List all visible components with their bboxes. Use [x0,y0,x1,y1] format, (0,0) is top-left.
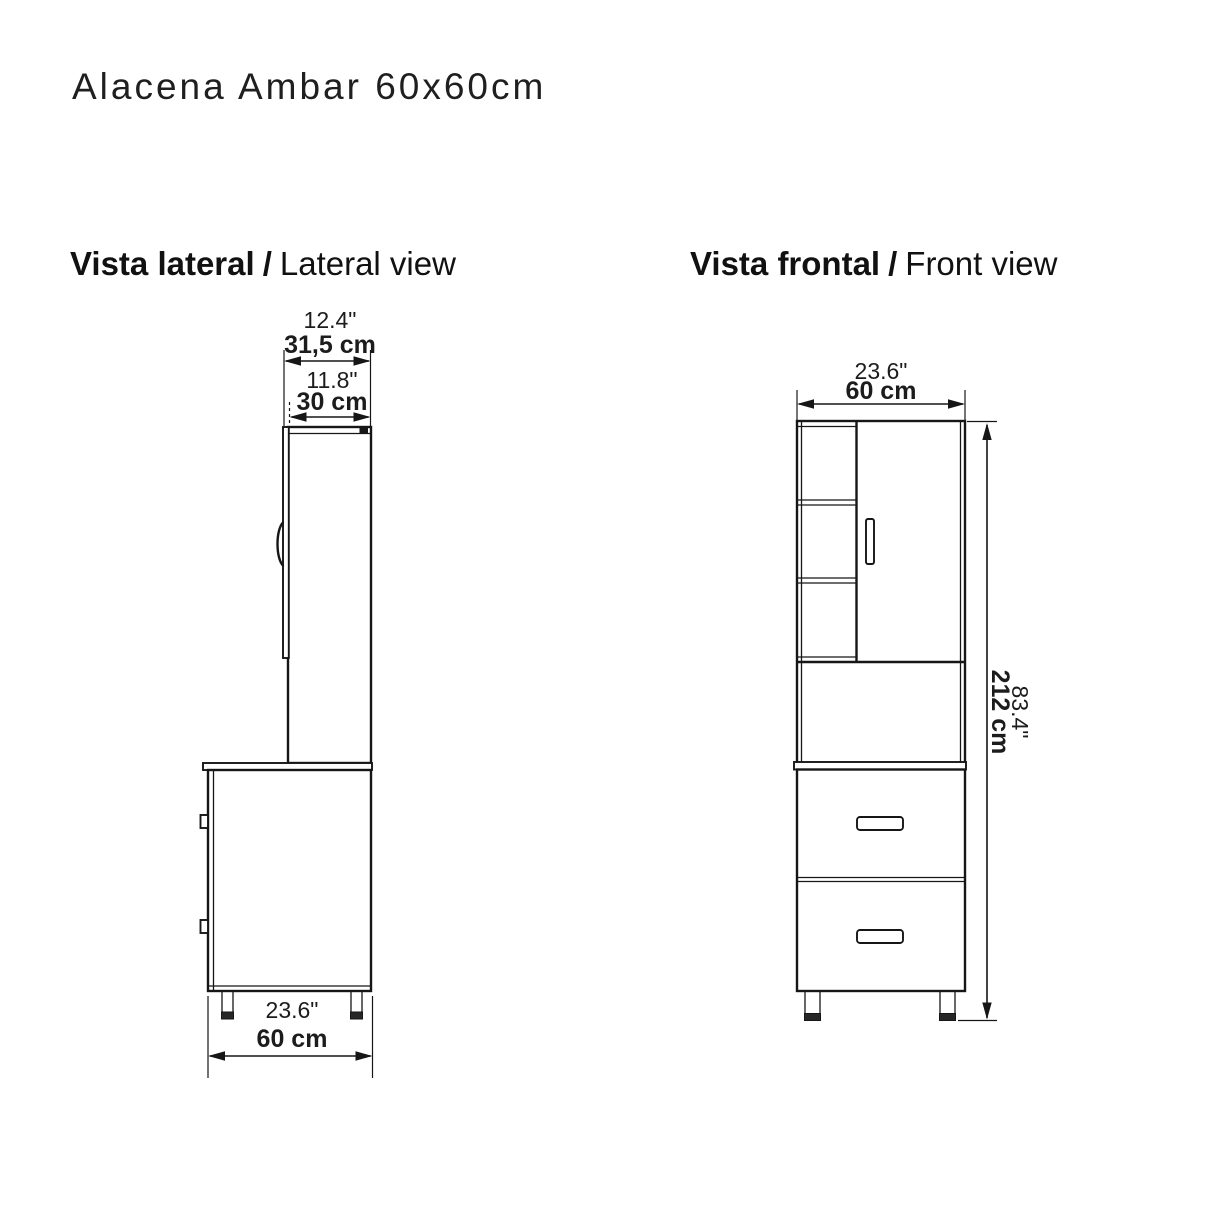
drawer-handle [857,817,903,830]
heading-separator: / [255,245,280,282]
furniture-dimension-diagram: Alacena Ambar 60x60cm Vista lateral/Late… [0,0,1214,1214]
height-cm-label: 212 cm [986,670,1014,755]
leg-foot [222,1012,234,1019]
total-depth-inches-label: 12.4" [304,307,357,333]
lateral-view-heading: Vista lateral/Lateral view [70,245,456,283]
base-cabinet-body [208,770,371,991]
lateral-heading-spanish: Vista lateral [70,245,255,282]
arrowhead-right [948,399,965,408]
leg-foot [940,1014,956,1021]
width-cm-label: 60 cm [846,377,917,405]
door-edge-profile [283,427,289,658]
frontal-heading-english: Front view [905,245,1057,282]
upper-cabinet-body [797,421,965,763]
base-width-inches-label: 23.6" [266,997,319,1023]
drawer-handle-profile [201,815,209,828]
lateral-base-cabinet [201,770,372,1019]
lateral-body-depth-dimension: 11.8" 30 cm [290,367,371,427]
frontal-height-dimension: 83.4" 212 cm [958,422,1033,1021]
leg-foot [805,1014,821,1021]
lateral-heading-english: Lateral view [280,245,456,282]
arrowhead-left [208,1051,225,1060]
arrowhead-bottom [982,1003,991,1020]
lateral-upper-cabinet [278,427,372,763]
base-width-cm-label: 60 cm [257,1025,328,1053]
drawer-handle-profile [201,920,209,933]
arrowhead-top [982,423,991,440]
frontal-heading-spanish: Vista frontal [690,245,880,282]
hinge-mark [360,428,369,434]
leg-foot [351,1012,363,1019]
arrowhead-right [356,1051,373,1060]
total-depth-cm-label: 31,5 cm [284,331,376,359]
heading-separator: / [880,245,905,282]
frontal-view-heading: Vista frontal/Front view [690,245,1058,283]
upper-cabinet-body [288,427,371,763]
body-depth-cm-label: 30 cm [297,388,368,416]
base-cabinet-body [797,770,965,992]
page-title: Alacena Ambar 60x60cm [72,66,546,108]
drawer-handle [857,930,903,943]
frontal-view-drawing: 23.6" 60 cm 83.4" 212 cm [690,340,1120,1080]
frontal-base-cabinet [797,770,965,1021]
door-handle [866,519,874,564]
lateral-view-drawing: 12.4" 31,5 cm 11.8" 30 cm 23.6" 60 cm [150,300,660,1090]
frontal-width-dimension: 23.6" 60 cm [797,358,965,421]
frontal-upper-cabinet [797,421,965,763]
arrowhead-left [797,399,814,408]
